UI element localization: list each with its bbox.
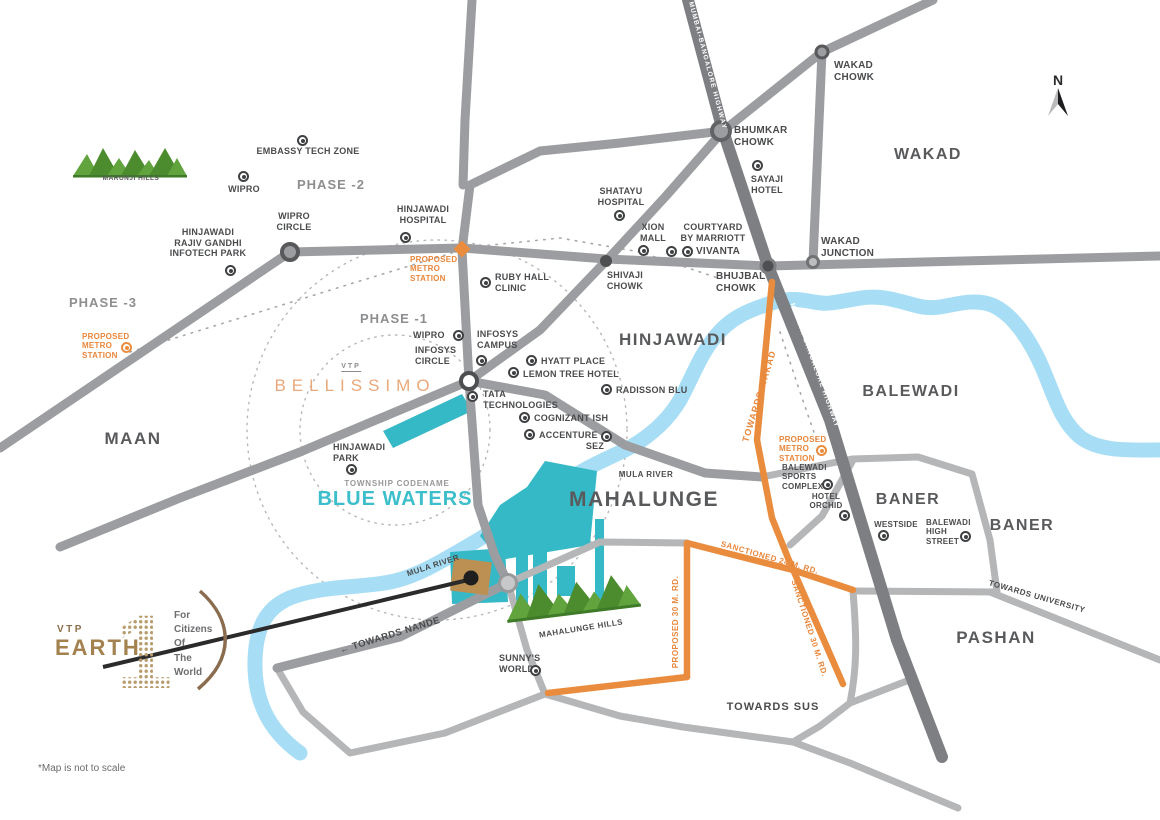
wakad-chowk-node <box>816 46 828 58</box>
shatayu-hospital-icon <box>614 210 625 221</box>
sunnys-world-icon <box>530 665 541 676</box>
poi-courtyard-by-marriott: COURTYARDBY MARRIOTT <box>680 222 745 243</box>
wipro-north-icon <box>238 171 249 182</box>
township-name: BLUE WATERS <box>317 488 472 511</box>
region-mahalunge: MAHALUNGE <box>569 488 719 512</box>
marunji-hills-icon <box>73 148 187 178</box>
poi-westside: WESTSIDE <box>874 520 918 529</box>
sayaji-hotel-icon <box>752 160 763 171</box>
north-label: N <box>1053 72 1063 88</box>
poi-wakad-junction: WAKADJUNCTION <box>821 236 874 260</box>
balewadi-sports-icon <box>822 479 833 490</box>
phase-2-label: PHASE -2 <box>297 177 365 192</box>
poi-infotech-park: HINJAWADIRAJIV GANDHIINFOTECH PARK <box>170 227 247 259</box>
poi-hinjawadi-park: HINJAWADIPARK <box>333 442 385 463</box>
main-roads <box>0 0 1160 668</box>
region-wakad: WAKAD <box>894 146 962 164</box>
sanctioned-30m-label: SANCTIONED 30 M. RD. <box>789 579 829 678</box>
poi-hotel-orchid: HOTELORCHID <box>809 492 842 511</box>
hyatt-place-icon <box>526 355 537 366</box>
region-pashan: PASHAN <box>956 628 1036 648</box>
vivanta-icon <box>682 246 693 257</box>
radisson-blu-icon <box>601 384 612 395</box>
poi-hyatt-place: HYATT PLACE <box>541 356 605 367</box>
region-maan: MAAN <box>105 429 162 449</box>
poi-radisson-blu: RADISSON BLU <box>616 385 688 396</box>
infotech-park-icon <box>225 265 236 276</box>
infosys-circle-node <box>461 373 477 389</box>
embassy-tech-zone-icon <box>297 135 308 146</box>
poi-bhumkar-chowk: BHUMKARCHOWK <box>734 125 787 149</box>
poi-vivanta: VIVANTA <box>696 246 740 258</box>
poi-cognizant: COGNIZANT ISH <box>534 413 608 424</box>
region-balewadi: BALEWADI <box>862 383 959 401</box>
towards-sus-label: TOWARDS SUS <box>727 701 820 713</box>
region-hinjawadi: HINJAWADI <box>619 330 727 350</box>
poi-wakad-chowk: WAKADCHOWK <box>834 60 874 84</box>
metro-west-icon <box>121 342 132 353</box>
site-access-node <box>500 575 517 592</box>
highway-label-top: MUMBAI-BANGALORE HIGHWAY <box>687 1 728 130</box>
proposed-30m-label: PROPOSED 30 M. RD. <box>671 576 680 669</box>
poi-wipro-phase1: WIPRO <box>413 330 445 341</box>
highway-label-mid: MUMBAI-BANGALORE HIGHWAY <box>789 302 841 428</box>
poi-sayaji-hotel: SAYAJIHOTEL <box>751 174 783 195</box>
poi-lemon-tree-hotel: LEMON TREE HOTEL <box>523 369 619 380</box>
poi-metro-center: PROPOSEDMETROSTATION <box>410 255 457 283</box>
metro-balewadi-icon <box>816 445 827 456</box>
phase-3-label: PHASE -3 <box>69 295 137 310</box>
hinjawadi-hospital-icon <box>400 232 411 243</box>
marunji-hills-label: MARUNJI HILLS <box>103 175 160 182</box>
bellissimo-brand: VTP <box>341 363 361 372</box>
mula-river-label-1: MULA RIVER <box>619 470 673 479</box>
map-disclaimer: *Map is not to scale <box>38 763 125 774</box>
tata-technologies-icon <box>467 391 478 402</box>
hotel-orchid-icon <box>839 510 850 521</box>
cognizant-icon <box>519 412 530 423</box>
phase-1-label: PHASE -1 <box>360 311 428 326</box>
wipro-circle-node <box>282 244 298 260</box>
vtp-earth-logo: 1 VTP EARTH ForCitizensOfTheWorld <box>50 575 250 697</box>
logo-tagline: ForCitizensOfTheWorld <box>174 609 212 680</box>
poi-wipro-circle: WIPROCIRCLE <box>277 211 312 232</box>
balewadi-high-street-icon <box>960 531 971 542</box>
region-baner-2: BANER <box>990 517 1054 535</box>
courtyard-icon <box>666 246 677 257</box>
xion-mall-icon <box>638 245 649 256</box>
westside-icon <box>878 530 889 541</box>
poi-bhujbal-chowk: BHUJBALCHOWK <box>716 271 766 295</box>
ruby-hall-clinic-icon <box>480 277 491 288</box>
poi-infosys-circle: INFOSYSCIRCLE <box>415 345 456 366</box>
poi-shivaji-chowk: SHIVAJICHOWK <box>607 270 643 291</box>
infosys-campus-icon <box>476 355 487 366</box>
bellissimo-name: BELLISSIMO <box>274 376 435 396</box>
north-compass-icon <box>1048 88 1068 116</box>
poi-wipro-north: WIPRO <box>228 184 260 195</box>
lemon-tree-hotel-icon <box>508 367 519 378</box>
poi-balewadi-sports-complex: BALEWADISPORTSCOMPLEX <box>782 463 827 491</box>
accenture-icon <box>524 429 535 440</box>
location-map: MUMBAI-BANGALORE HIGHWAY MUMBAI-BANGALOR… <box>0 0 1160 820</box>
poi-sez: SEZ <box>586 441 604 452</box>
poi-embassy-tech-zone: EMBASSY TECH ZONE <box>256 146 359 157</box>
township-codename-label: TOWNSHIP CODENAME <box>344 479 449 488</box>
wakad-junction-node <box>808 257 819 268</box>
region-baner-1: BANER <box>876 491 940 509</box>
poi-infosys-campus: INFOSYSCAMPUS <box>477 329 518 350</box>
poi-tata-technologies: TATATECHNOLOGIES <box>483 389 558 410</box>
shivaji-chowk-node <box>600 255 612 267</box>
hinjawadi-park-icon <box>346 464 357 475</box>
logo-brand: VTP <box>57 624 84 635</box>
poi-shatayu-hospital: SHATAYUHOSPITAL <box>598 186 645 207</box>
wipro-phase1-icon <box>453 330 464 341</box>
logo-name: EARTH <box>55 635 141 661</box>
poi-ruby-hall-clinic: RUBY HALLCLINIC <box>495 272 549 293</box>
poi-xion-mall: XIONMALL <box>640 222 666 243</box>
poi-accenture: ACCENTURE <box>539 430 598 441</box>
poi-hinjawadi-hospital: HINJAWADIHOSPITAL <box>397 204 449 225</box>
